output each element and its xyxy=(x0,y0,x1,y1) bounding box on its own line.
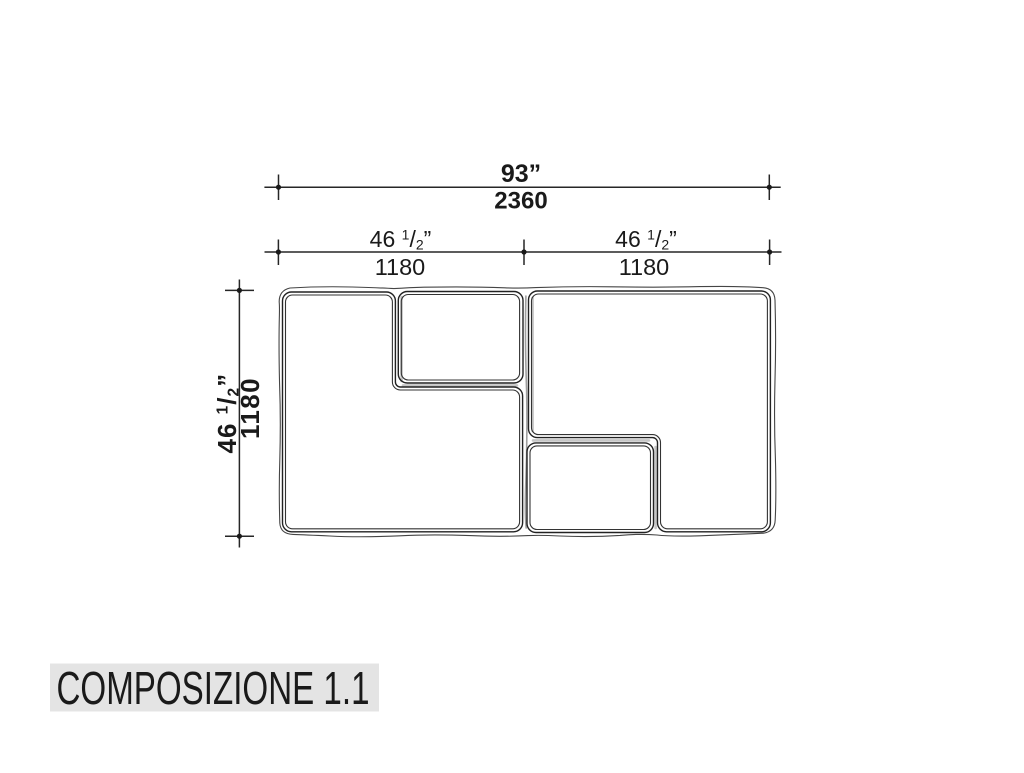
svg-text:1180: 1180 xyxy=(619,254,670,280)
svg-text:93”: 93” xyxy=(501,160,541,188)
svg-text:COMPOSIZIONE 1.1: COMPOSIZIONE 1.1 xyxy=(57,662,370,714)
svg-text:1180: 1180 xyxy=(235,377,265,439)
svg-text:1180: 1180 xyxy=(375,254,426,280)
svg-text:46 1/2”: 46 1/2” xyxy=(370,226,432,253)
svg-text:46 1/2”: 46 1/2” xyxy=(615,226,677,253)
svg-text:2360: 2360 xyxy=(494,187,547,214)
